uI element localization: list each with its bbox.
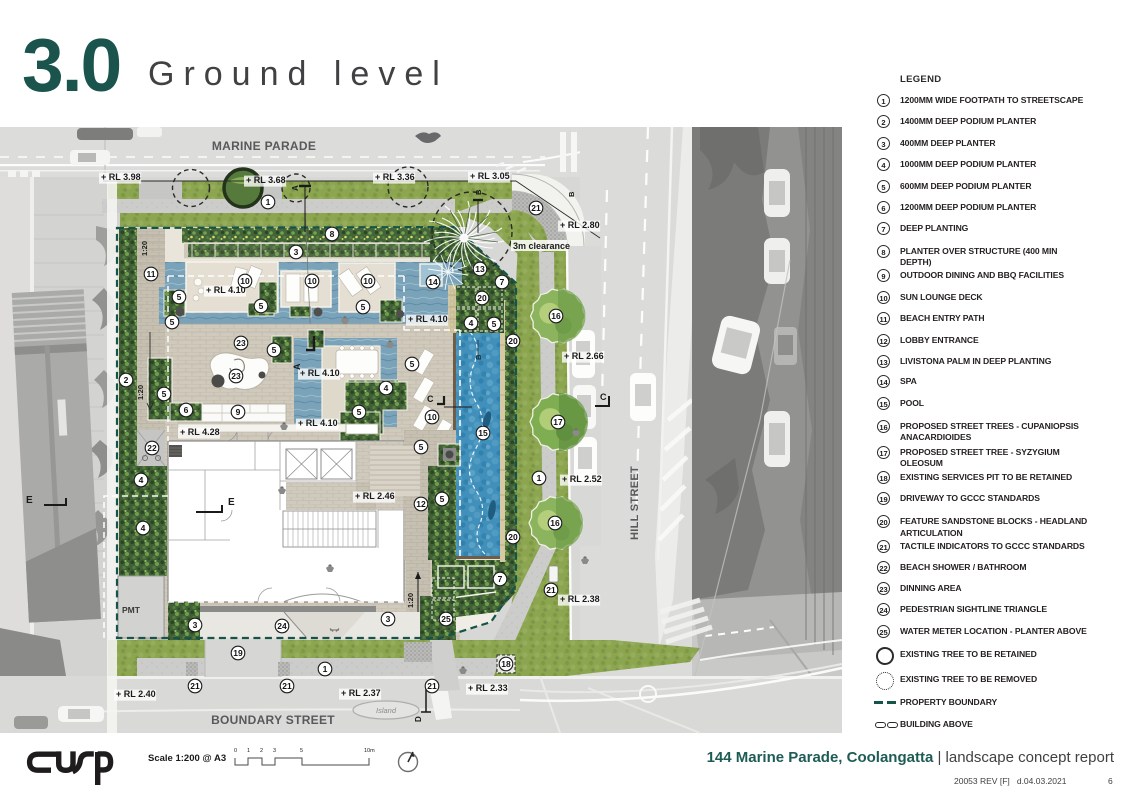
- svg-text:+ RL 2.66: + RL 2.66: [564, 351, 604, 361]
- svg-text:1:20: 1:20: [140, 241, 149, 256]
- svg-text:10: 10: [427, 412, 437, 422]
- svg-text:8: 8: [330, 229, 335, 239]
- svg-text:20: 20: [508, 532, 518, 542]
- svg-text:5: 5: [440, 494, 445, 504]
- svg-text:21: 21: [546, 585, 556, 595]
- svg-text:BOUNDARY STREET: BOUNDARY STREET: [211, 713, 335, 727]
- svg-text:12: 12: [416, 499, 426, 509]
- svg-text:D: D: [414, 716, 423, 722]
- svg-text:5: 5: [361, 302, 366, 312]
- svg-text:5: 5: [410, 359, 415, 369]
- svg-text:20: 20: [508, 336, 518, 346]
- svg-text:3: 3: [386, 614, 391, 624]
- svg-text:4: 4: [141, 523, 146, 533]
- svg-text:10: 10: [240, 276, 250, 286]
- svg-text:10: 10: [307, 276, 317, 286]
- svg-text:24: 24: [277, 621, 287, 631]
- svg-text:5: 5: [177, 292, 182, 302]
- svg-text:14: 14: [428, 277, 438, 287]
- svg-text:1:20: 1:20: [136, 385, 145, 400]
- svg-text:18: 18: [501, 659, 511, 669]
- svg-text:1: 1: [266, 197, 271, 207]
- svg-text:C: C: [600, 392, 607, 402]
- svg-text:+ RL 3.05: + RL 3.05: [470, 171, 510, 181]
- svg-text:21: 21: [282, 681, 292, 691]
- svg-text:13: 13: [475, 264, 485, 274]
- svg-text:B: B: [567, 191, 576, 197]
- svg-text:15: 15: [478, 428, 488, 438]
- svg-text:+ RL 4.10: + RL 4.10: [408, 314, 448, 324]
- svg-text:B: B: [474, 354, 483, 360]
- svg-text:4: 4: [384, 383, 389, 393]
- svg-text:HILL STREET: HILL STREET: [629, 466, 641, 540]
- svg-text:1: 1: [537, 473, 542, 483]
- svg-text:21: 21: [190, 681, 200, 691]
- svg-text:21: 21: [427, 681, 437, 691]
- svg-text:1: 1: [323, 664, 328, 674]
- svg-text:5: 5: [492, 319, 497, 329]
- svg-text:A: A: [291, 185, 300, 191]
- svg-text:4: 4: [469, 318, 474, 328]
- svg-text:19: 19: [233, 648, 243, 658]
- svg-text:5: 5: [259, 301, 264, 311]
- svg-text:B: B: [474, 189, 483, 195]
- svg-text:17: 17: [553, 417, 563, 427]
- svg-text:+ RL 4.10: + RL 4.10: [300, 368, 340, 378]
- svg-text:E: E: [228, 497, 235, 508]
- svg-text:A: A: [292, 363, 302, 370]
- svg-text:9: 9: [236, 407, 241, 417]
- svg-text:5: 5: [357, 407, 362, 417]
- svg-text:4: 4: [139, 475, 144, 485]
- svg-text:+ RL 4.10: + RL 4.10: [206, 285, 246, 295]
- svg-text:3: 3: [294, 247, 299, 257]
- svg-text:22: 22: [147, 443, 157, 453]
- svg-text:+ RL 4.28: + RL 4.28: [180, 427, 220, 437]
- svg-text:+ RL 2.52: + RL 2.52: [562, 474, 602, 484]
- svg-text:+ RL 2.37: + RL 2.37: [341, 688, 381, 698]
- svg-text:+ RL 4.10: + RL 4.10: [298, 418, 338, 428]
- svg-text:+ RL 2.38: + RL 2.38: [560, 594, 600, 604]
- svg-text:10: 10: [363, 276, 373, 286]
- svg-text:16: 16: [550, 518, 560, 528]
- svg-text:11: 11: [147, 269, 156, 279]
- svg-text:Island: Island: [376, 706, 397, 715]
- svg-text:23: 23: [236, 338, 246, 348]
- svg-text:MARINE PARADE: MARINE PARADE: [212, 139, 316, 153]
- svg-text:1:20: 1:20: [406, 593, 415, 608]
- svg-text:3: 3: [193, 620, 198, 630]
- svg-text:16: 16: [551, 311, 561, 321]
- svg-text:20: 20: [477, 293, 487, 303]
- svg-text:25: 25: [441, 614, 451, 624]
- svg-text:+ RL 3.68: + RL 3.68: [246, 175, 286, 185]
- svg-text:+ RL 2.46: + RL 2.46: [355, 491, 395, 501]
- svg-text:3m clearance: 3m clearance: [513, 241, 570, 251]
- svg-text:7: 7: [498, 574, 503, 584]
- svg-text:5: 5: [419, 442, 424, 452]
- svg-text:+ RL 3.36: + RL 3.36: [375, 172, 415, 182]
- svg-text:23: 23: [231, 371, 241, 381]
- svg-text:+ RL 2.80: + RL 2.80: [560, 220, 600, 230]
- svg-text:7: 7: [500, 277, 505, 287]
- svg-text:+ RL 2.33: + RL 2.33: [468, 683, 508, 693]
- svg-text:5: 5: [162, 389, 167, 399]
- svg-text:5: 5: [272, 345, 277, 355]
- svg-text:5: 5: [170, 317, 175, 327]
- svg-text:C: C: [427, 394, 434, 404]
- svg-text:6: 6: [184, 405, 189, 415]
- svg-text:21: 21: [531, 203, 541, 213]
